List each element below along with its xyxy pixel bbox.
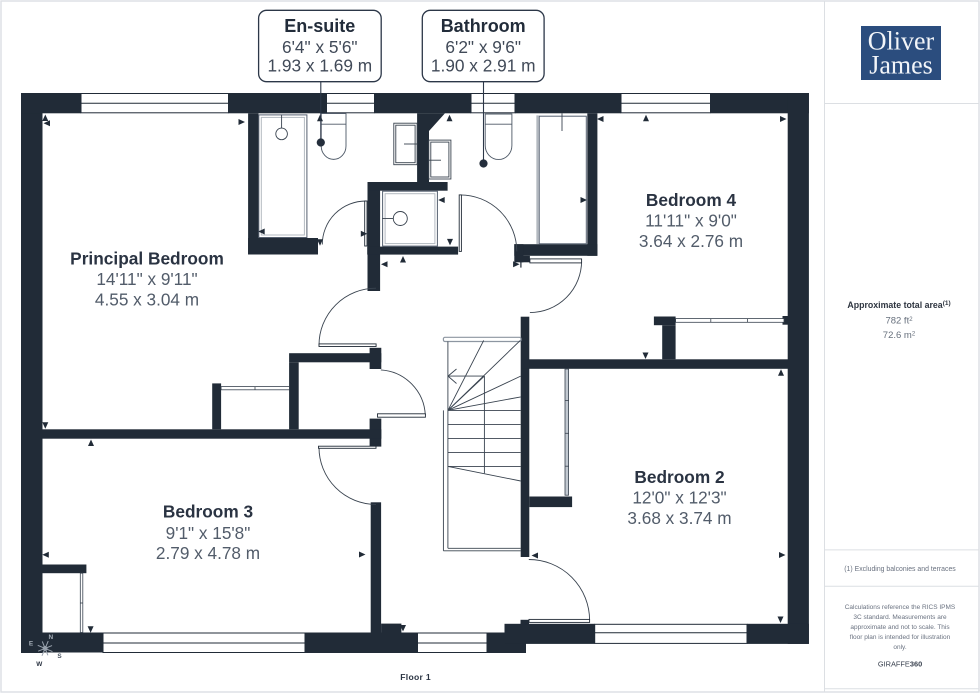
svg-text:Floor 1: Floor 1	[400, 672, 431, 682]
svg-text:Principal Bedroom: Principal Bedroom	[70, 249, 224, 269]
svg-text:3C standard. Measurements are: 3C standard. Measurements are	[853, 614, 947, 621]
svg-text:1.90 x 2.91 m: 1.90 x 2.91 m	[431, 56, 536, 76]
svg-text:W: W	[36, 661, 43, 668]
svg-text:14'11" x 9'11": 14'11" x 9'11"	[96, 269, 197, 289]
svg-text:approximate and not to scale.: approximate and not to scale. This	[850, 624, 950, 631]
svg-text:(1) Excluding balconies and te: (1) Excluding balconies and terraces	[844, 566, 956, 573]
svg-text:1.93 x 1.69 m: 1.93 x 1.69 m	[267, 56, 372, 76]
svg-text:9'1" x 15'8": 9'1" x 15'8"	[166, 523, 251, 543]
svg-text:782 ft2: 782 ft2	[885, 316, 913, 327]
svg-text:3.64 x 2.76 m: 3.64 x 2.76 m	[639, 231, 743, 251]
svg-text:floor plan is intended for ill: floor plan is intended for illustration	[850, 634, 951, 641]
svg-text:2.79 x 4.78 m: 2.79 x 4.78 m	[156, 543, 260, 563]
svg-text:James: James	[869, 51, 933, 80]
svg-text:only.: only.	[893, 644, 906, 651]
svg-text:S: S	[57, 653, 62, 660]
svg-text:Approximate total area(1): Approximate total area(1)	[847, 300, 950, 310]
svg-text:Bathroom: Bathroom	[441, 16, 526, 36]
svg-text:E: E	[29, 640, 34, 647]
svg-text:En-suite: En-suite	[284, 16, 355, 36]
svg-text:6'4" x 5'6": 6'4" x 5'6"	[282, 37, 358, 57]
svg-text:6'2" x 9'6": 6'2" x 9'6"	[445, 37, 521, 57]
svg-text:4.55 x 3.04 m: 4.55 x 3.04 m	[95, 290, 199, 310]
svg-text:Bedroom 4: Bedroom 4	[646, 190, 737, 210]
svg-text:11'11" x 9'0": 11'11" x 9'0"	[645, 210, 737, 230]
svg-text:GIRAFFE360: GIRAFFE360	[878, 660, 922, 669]
svg-text:72.6 m2: 72.6 m2	[883, 330, 916, 341]
svg-text:3.68 x 3.74 m: 3.68 x 3.74 m	[627, 508, 731, 528]
svg-text:12'0" x 12'3": 12'0" x 12'3"	[632, 487, 726, 507]
svg-text:Calculations reference the RIC: Calculations reference the RICS IPMS	[845, 604, 956, 611]
svg-text:N: N	[48, 634, 53, 641]
svg-text:Bedroom 2: Bedroom 2	[634, 467, 724, 487]
svg-text:Bedroom 3: Bedroom 3	[163, 502, 253, 522]
